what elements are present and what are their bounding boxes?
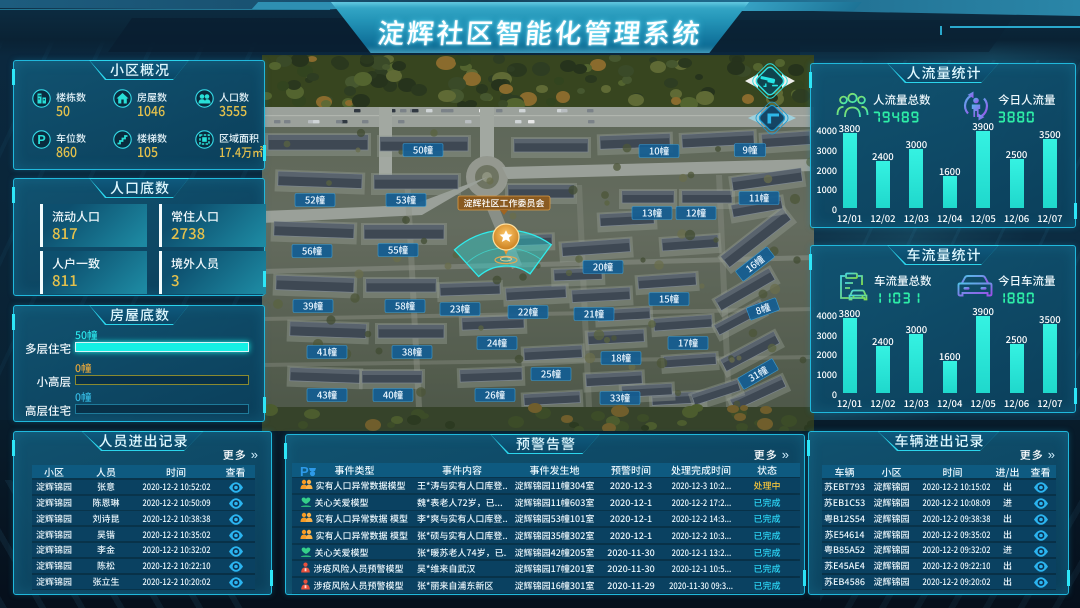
svg-text:淀辉社区工作委员会: 淀辉社区工作委员会 <box>463 197 544 210</box>
svg-text:17幢: 17幢 <box>678 336 699 350</box>
svg-text:12幢: 12幢 <box>686 206 707 220</box>
svg-text:56幢: 56幢 <box>302 244 323 258</box>
svg-text:39幢: 39幢 <box>303 299 324 313</box>
svg-text:52幢: 52幢 <box>305 193 326 207</box>
svg-text:58幢: 58幢 <box>395 299 416 313</box>
svg-text:11幢: 11幢 <box>749 191 770 205</box>
svg-text:21幢: 21幢 <box>584 307 605 321</box>
svg-text:41幢: 41幢 <box>317 345 338 359</box>
svg-text:50幢: 50幢 <box>413 143 434 157</box>
svg-text:43幢: 43幢 <box>317 388 338 402</box>
svg-text:26幢: 26幢 <box>485 388 506 402</box>
svg-text:25幢: 25幢 <box>541 367 562 381</box>
svg-text:38幢: 38幢 <box>402 345 423 359</box>
svg-text:9幢: 9幢 <box>743 143 758 157</box>
svg-text:10幢: 10幢 <box>649 144 670 158</box>
svg-text:23幢: 23幢 <box>450 302 471 316</box>
svg-text:24幢: 24幢 <box>487 336 508 350</box>
svg-text:22幢: 22幢 <box>518 305 539 319</box>
svg-text:13幢: 13幢 <box>642 206 663 220</box>
svg-text:55幢: 55幢 <box>388 243 409 257</box>
svg-text:P: P <box>300 464 309 477</box>
svg-text:18幢: 18幢 <box>611 351 632 365</box>
svg-text:15幢: 15幢 <box>659 292 680 306</box>
svg-text:40幢: 40幢 <box>383 388 404 402</box>
svg-text:33幢: 33幢 <box>610 391 631 405</box>
svg-text:53幢: 53幢 <box>396 193 417 207</box>
svg-text:20幢: 20幢 <box>593 260 614 274</box>
svg-text:P: P <box>37 133 45 147</box>
